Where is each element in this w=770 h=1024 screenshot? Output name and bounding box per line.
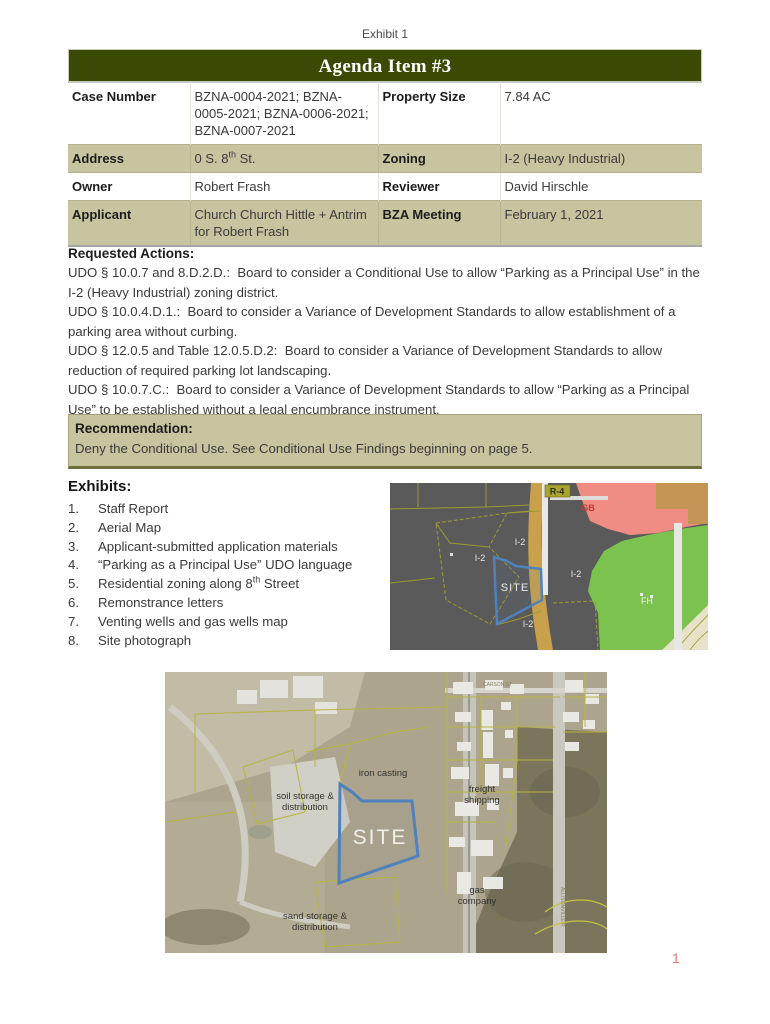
applicant-value: Church Church Hittle + Antrim for Robert… (190, 201, 378, 247)
address-superscript: th (228, 150, 236, 160)
requested-action-item: UDO § 10.0.7 and 8.D.2.D.: Board to cons… (68, 263, 708, 302)
property-size-value: 7.84 AC (500, 83, 702, 145)
list-item: 8.Site photograph (68, 632, 388, 651)
exhibits-list: 1.Staff Report 2.Aerial Map 3.Applicant-… (68, 500, 388, 650)
list-item-text-pre: Staff Report (98, 501, 168, 516)
list-item-text: Site photograph (98, 632, 191, 651)
reviewer-label: Reviewer (378, 173, 500, 201)
table-row: Case Number BZNA-0004-2021; BZNA-0005-20… (68, 83, 702, 145)
aerial-map-image: SITE iron casting soil storage & distrib… (165, 672, 607, 953)
list-item-number: 8. (68, 632, 98, 651)
list-item-text: Remonstrance letters (98, 594, 223, 613)
site-label: SITE (501, 582, 529, 594)
requested-actions-section: Requested Actions: UDO § 10.0.7 and 8.D.… (68, 246, 708, 419)
list-item-text-post: Street (260, 576, 299, 591)
site-label: SITE (353, 826, 408, 849)
page-number: 1 (672, 950, 680, 966)
aerial-map-graphic: SITE iron casting soil storage & distrib… (165, 672, 607, 953)
owner-value: Robert Frash (190, 173, 378, 201)
property-size-label: Property Size (378, 83, 500, 145)
requested-action-item: UDO § 12.0.5 and Table 12.0.5.D.2: Board… (68, 341, 708, 380)
list-item-number: 2. (68, 519, 98, 538)
case-info-table: Case Number BZNA-0004-2021; BZNA-0005-20… (68, 82, 702, 247)
owner-label: Owner (68, 173, 190, 201)
zoning-map-image: R-4 GB FH I-2 I-2 I-2 I-2 SITE (390, 483, 708, 650)
list-item-number: 3. (68, 538, 98, 557)
exhibit-label: Exhibit 1 (0, 27, 770, 41)
i2-zone-label: I-2 (475, 553, 486, 563)
i2-zone-label: I-2 (571, 569, 582, 579)
table-row: Address 0 S. 8th St. Zoning I-2 (Heavy I… (68, 145, 702, 173)
list-item-text: “Parking as a Principal Use” UDO languag… (98, 556, 352, 575)
list-item-text-pre: Aerial Map (98, 520, 161, 535)
document-page: Exhibit 1 Agenda Item #3 Case Number BZN… (0, 0, 770, 1024)
list-item-text-pre: Site photograph (98, 633, 191, 648)
freight-shipping-label: freight (469, 784, 496, 795)
street-name-label: ALLISONVILLE R (559, 887, 565, 927)
applicant-label: Applicant (68, 201, 190, 247)
list-item-text: Staff Report (98, 500, 168, 519)
list-item-text-pre: “Parking as a Principal Use” UDO languag… (98, 557, 352, 572)
list-item: 2.Aerial Map (68, 519, 388, 538)
table-row: Applicant Church Church Hittle + Antrim … (68, 201, 702, 247)
list-item-text: Venting wells and gas wells map (98, 613, 288, 632)
list-item: 1.Staff Report (68, 500, 388, 519)
list-item-number: 1. (68, 500, 98, 519)
address-label: Address (68, 145, 190, 173)
requested-action-item: UDO § 10.0.4.D.1.: Board to consider a V… (68, 302, 708, 341)
iron-casting-label: iron casting (359, 768, 408, 779)
list-item-text-pre: Residential zoning along 8 (98, 576, 253, 591)
list-item-number: 7. (68, 613, 98, 632)
case-number-label: Case Number (68, 83, 190, 145)
list-item-text-pre: Remonstrance letters (98, 595, 223, 610)
list-item: 3.Applicant-submitted application materi… (68, 538, 388, 557)
list-item-text: Applicant-submitted application material… (98, 538, 338, 557)
gas-company-label-2: company (458, 896, 497, 907)
fh-zone-label: FH (641, 596, 653, 606)
r4-zone-label: R-4 (550, 487, 565, 497)
list-item: 5.Residential zoning along 8th Street (68, 575, 388, 594)
list-item-number: 4. (68, 556, 98, 575)
list-item-text: Residential zoning along 8th Street (98, 575, 299, 594)
list-item-text-pre: Venting wells and gas wells map (98, 614, 288, 629)
i2-zone-label: I-2 (515, 537, 526, 547)
list-item: 7.Venting wells and gas wells map (68, 613, 388, 632)
soil-storage-label: soil storage & (276, 791, 334, 802)
agenda-title: Agenda Item #3 (319, 56, 452, 77)
address-text-post: St. (236, 151, 256, 166)
street-name-label: CARSON ST (483, 682, 512, 688)
sand-storage-label-2: distribution (292, 922, 338, 933)
case-number-value: BZNA-0004-2021; BZNA-0005-2021; BZNA-000… (190, 83, 378, 145)
requested-actions-heading: Requested Actions: (68, 246, 708, 261)
soil-storage-label-2: distribution (282, 802, 328, 813)
list-item: 4.“Parking as a Principal Use” UDO langu… (68, 556, 388, 575)
address-value: 0 S. 8th St. (190, 145, 378, 173)
gas-company-label: gas (469, 885, 485, 896)
i2-zone-label: I-2 (523, 619, 534, 629)
gb-zone-label: GB (581, 503, 595, 513)
recommendation-box: Recommendation: Deny the Conditional Use… (68, 414, 702, 469)
agenda-header-bar: Agenda Item #3 (68, 49, 702, 82)
recommendation-heading: Recommendation: (75, 421, 693, 436)
zoning-value: I-2 (Heavy Industrial) (500, 145, 702, 173)
list-item-number: 6. (68, 594, 98, 613)
list-item-text-pre: Applicant-submitted application material… (98, 539, 338, 554)
bza-meeting-label: BZA Meeting (378, 201, 500, 247)
list-item-text: Aerial Map (98, 519, 161, 538)
list-item: 6.Remonstrance letters (68, 594, 388, 613)
list-item-number: 5. (68, 575, 98, 594)
freight-shipping-label-2: shipping (464, 795, 499, 806)
recommendation-text: Deny the Conditional Use. See Conditiona… (75, 440, 693, 458)
address-text: 0 S. 8 (195, 151, 229, 166)
zoning-label: Zoning (378, 145, 500, 173)
exhibits-heading: Exhibits: (68, 478, 131, 495)
zoning-map-graphic: R-4 GB FH I-2 I-2 I-2 I-2 SITE (390, 483, 708, 650)
reviewer-value: David Hirschle (500, 173, 702, 201)
bza-meeting-value: February 1, 2021 (500, 201, 702, 247)
table-row: Owner Robert Frash Reviewer David Hirsch… (68, 173, 702, 201)
sand-storage-label: sand storage & (283, 911, 348, 922)
